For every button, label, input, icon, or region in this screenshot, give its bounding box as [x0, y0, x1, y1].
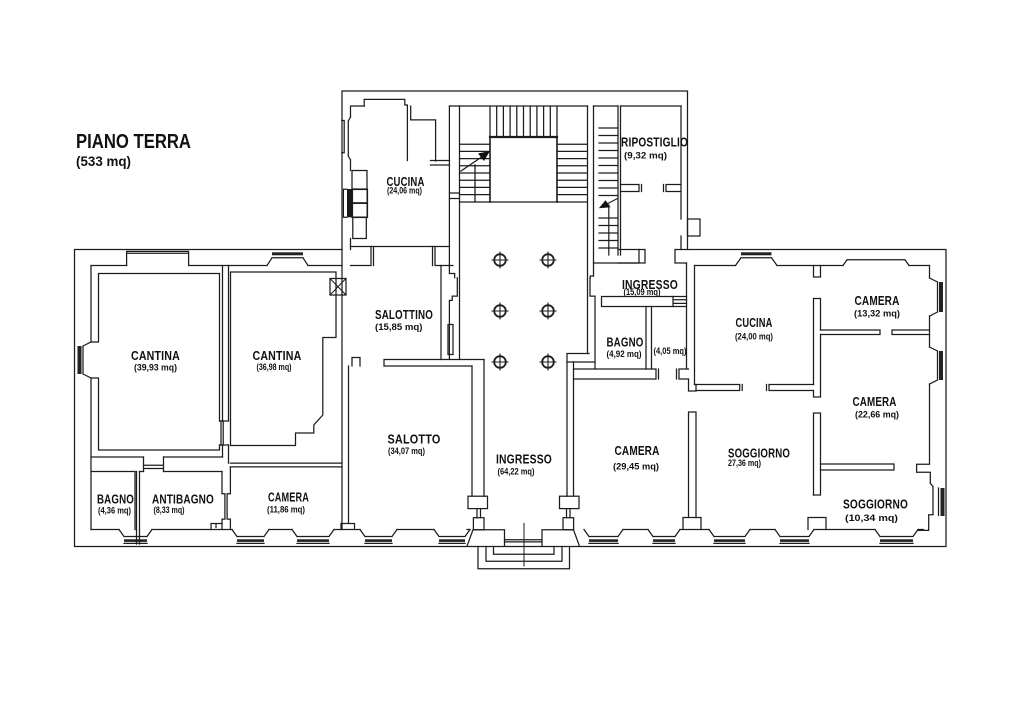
svg-text:(9,32 mq): (9,32 mq) — [624, 151, 667, 162]
svg-text:(13,32 mq): (13,32 mq) — [854, 309, 900, 320]
svg-text:(24,00 mq): (24,00 mq) — [735, 332, 773, 343]
svg-text:CANTINA: CANTINA — [253, 349, 302, 363]
svg-text:(24,06 mq): (24,06 mq) — [387, 186, 422, 197]
svg-text:(11,86 mq): (11,86 mq) — [267, 505, 305, 516]
svg-text:SOGGIORNO: SOGGIORNO — [843, 498, 908, 512]
svg-text:(29,45 mq): (29,45 mq) — [613, 462, 659, 473]
svg-text:BAGNO: BAGNO — [97, 493, 134, 507]
svg-text:(8,33 mq): (8,33 mq) — [154, 505, 185, 516]
svg-text:CAMERA: CAMERA — [268, 491, 309, 505]
svg-text:CANTINA: CANTINA — [131, 349, 180, 363]
svg-text:(4,05 mq): (4,05 mq) — [654, 346, 687, 357]
svg-text:(34,07 mq): (34,07 mq) — [388, 446, 425, 457]
svg-text:(15,85 mq): (15,85 mq) — [375, 322, 423, 333]
svg-text:CAMERA: CAMERA — [615, 444, 660, 458]
svg-text:27,36 mq): 27,36 mq) — [728, 458, 761, 469]
svg-text:(64,22 mq): (64,22 mq) — [498, 467, 535, 478]
svg-text:(533 mq): (533 mq) — [76, 154, 131, 169]
svg-text:(39,93 mq): (39,93 mq) — [134, 363, 177, 374]
svg-text:(15,09 mq): (15,09 mq) — [624, 287, 661, 298]
svg-text:(22,66 mq): (22,66 mq) — [855, 410, 899, 421]
svg-text:CUCINA: CUCINA — [736, 316, 773, 330]
svg-text:(36,98 mq): (36,98 mq) — [257, 362, 292, 373]
svg-text:SALOTTINO: SALOTTINO — [375, 308, 433, 322]
svg-text:CAMERA: CAMERA — [853, 395, 897, 409]
svg-text:(4,92 mq): (4,92 mq) — [607, 349, 642, 360]
svg-text:BAGNO: BAGNO — [607, 336, 644, 350]
svg-text:RIPOSTIGLIO: RIPOSTIGLIO — [621, 136, 688, 150]
svg-text:(10,34 mq): (10,34 mq) — [845, 513, 898, 524]
svg-text:CAMERA: CAMERA — [855, 294, 900, 308]
svg-text:INGRESSO: INGRESSO — [496, 453, 552, 467]
svg-text:(4,36 mq): (4,36 mq) — [98, 506, 131, 517]
svg-text:PIANO TERRA: PIANO TERRA — [76, 131, 191, 153]
svg-text:SALOTTO: SALOTTO — [388, 433, 441, 447]
